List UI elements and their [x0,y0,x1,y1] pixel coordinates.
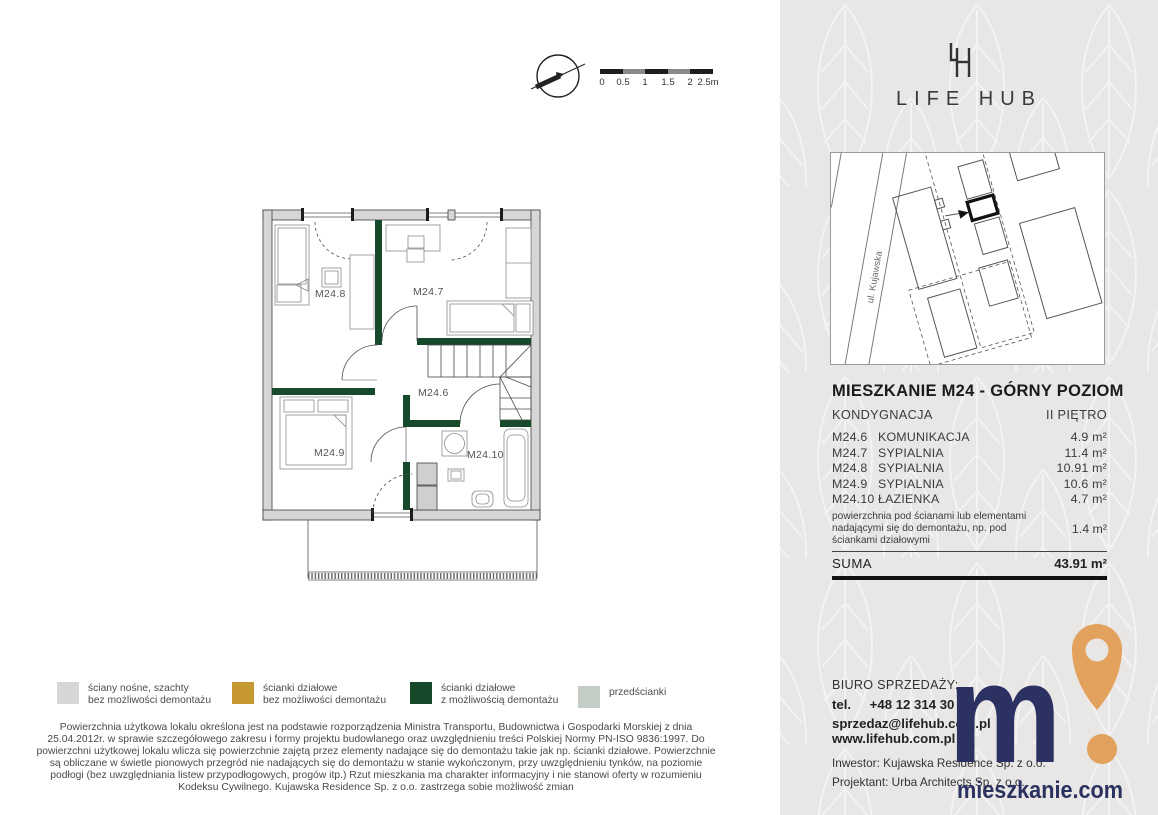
legend-swatch-structural [57,682,79,704]
scale-label: 1 [642,77,647,88]
legend-swatch-fixed-partition [232,682,254,704]
room-table: M24.6 KOMUNIKACJA 4.9 m² M24.7 SYPIALNIA… [832,430,1107,580]
wall-legend: ściany nośne, szachtybez możliwości demo… [57,682,757,708]
phone-line: tel. +48 12 314 30 04 [832,697,1112,712]
phone-number: +48 12 314 30 04 [870,697,973,712]
web-line: sprzedaz@lifehub.com.pl | www.lifehub.co… [832,716,1112,746]
wall-ticks [301,208,503,521]
info-panel: LIFE HUB ul. Kujawska [780,0,1158,815]
sum-row: SUMA 43.91 m² [832,552,1107,580]
walls-note-area: 1.4 m² [1072,522,1107,536]
location-map: ul. Kujawska [830,152,1105,365]
life-hub-monogram-icon [940,40,980,82]
plan-area: 0 0.5 1 1.5 2 2.5m [0,0,780,815]
room-row: M24.6 KOMUNIKACJA 4.9 m² [832,430,1107,446]
scale-label: 1.5 [661,77,674,88]
legal-disclaimer: Powierzchnia użytkowa lokalu określona j… [36,722,716,794]
life-hub-wordmark: LIFE HUB [780,88,1158,111]
room-label-m24-9: M24.9 [314,447,345,459]
floor-plan-drawing: M24.8 M24.7 M24.6 M24.9 M24.10 [250,195,550,590]
walls-note: powierzchnia pod ścianami lub elementami… [832,511,1044,547]
room-row: M24.10 ŁAZIENKA 4.7 m² [832,492,1107,508]
floor-value: II PIĘTRO [1046,407,1107,422]
room-row: M24.8 SYPIALNIA 10.91 m² [832,461,1107,477]
scale-label: 2.5m [697,77,718,88]
legend-item-fixed-partition: ścianki działowebez możliwości demontażu [232,682,410,707]
balcony [308,520,537,580]
scale-label: 0.5 [616,77,629,88]
website-link[interactable]: www.lifehub.com.pl [832,731,955,746]
street-lines [831,153,906,364]
room-row: M24.9 SYPIALNIA 10.6 m² [832,477,1107,493]
stairs [428,345,531,420]
walls-note-row: powierzchnia pod ścianami lub elementami… [832,508,1107,552]
scale-bar: 0 0.5 1 1.5 2 2.5m [600,66,720,92]
designer-line: Projektant: Urba Architects Sp. z o.o. [832,775,1112,789]
windows [303,213,502,517]
legend-item-removable-partition: ścianki działowez możliwością demontażu [410,682,578,707]
sum-value: 43.91 m² [1054,556,1107,571]
legend-swatch-pre-wall [578,686,600,708]
compass-icon [528,48,588,104]
legend-item-pre-wall: przedścianki [578,682,666,708]
room-row: M24.7 SYPIALNIA 11.4 m² [832,446,1107,462]
scale-label: 0 [599,77,604,88]
buildings [872,152,1105,365]
room-label-m24-10: M24.10 [467,449,504,461]
unit-title: MIESZKANIE M24 - GÓRNY POZIOM [832,382,1107,401]
legend-item-structural: ściany nośne, szachtybez możliwości demo… [57,682,232,707]
room-label-m24-6: M24.6 [418,387,449,399]
floor-row: KONDYGNACJA II PIĘTRO [832,407,1107,422]
email-link[interactable]: sprzedaz@lifehub.com.pl [832,716,991,731]
floor-label: KONDYGNACJA [832,407,933,422]
unit-location-marker [967,195,998,220]
room-label-m24-7: M24.7 [413,286,444,298]
sales-office-label: BIURO SPRZEDAŻY: [832,678,1112,692]
room-label-m24-8: M24.8 [315,288,346,300]
investor-line: Inwestor: Kujawska Residence Sp. z o.o. [832,756,1112,770]
sales-office-contact: BIURO SPRZEDAŻY: tel. +48 12 314 30 04 s… [832,678,1112,789]
sum-label: SUMA [832,556,872,571]
shaft [417,463,437,510]
legend-swatch-removable-partition [410,682,432,704]
scale-label: 2 [687,77,692,88]
floor-plan-sheet: 0 0.5 1 1.5 2 2.5m [0,0,1158,815]
scale-bar-segments [600,69,713,74]
